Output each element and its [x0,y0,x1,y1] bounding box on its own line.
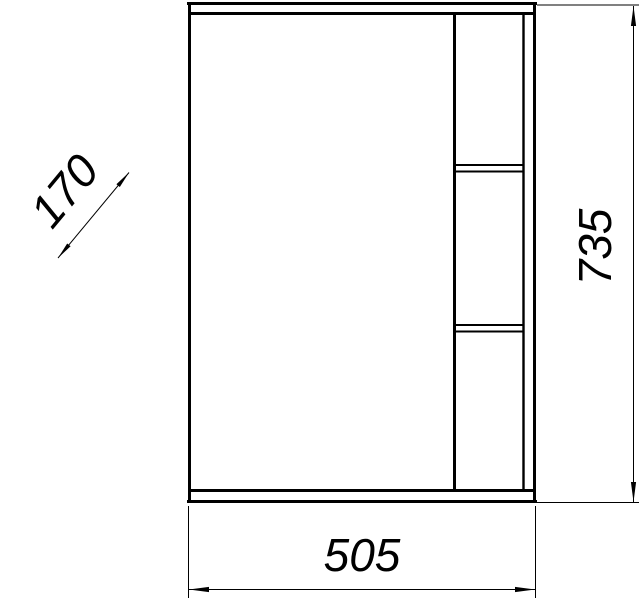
height-dimension-label: 735 [569,208,621,285]
arrow-up-right-icon [116,173,129,188]
dimension-height: 735 [537,5,639,503]
arrow-right-icon [515,587,535,592]
arrow-up-icon [631,6,636,26]
arrow-left-icon [189,587,209,592]
dimension-depth: 170 [20,144,129,258]
drawing-canvas: 505 735 170 [0,0,643,600]
technical-drawing: 505 735 170 [0,0,643,600]
shelves [456,165,523,332]
dimension-width: 505 [189,506,536,598]
width-dimension-label: 505 [324,529,401,581]
arrow-down-left-icon [58,244,71,259]
arrow-down-icon [631,482,636,502]
depth-dimension-label: 170 [20,144,109,237]
cabinet-outline [187,2,537,503]
